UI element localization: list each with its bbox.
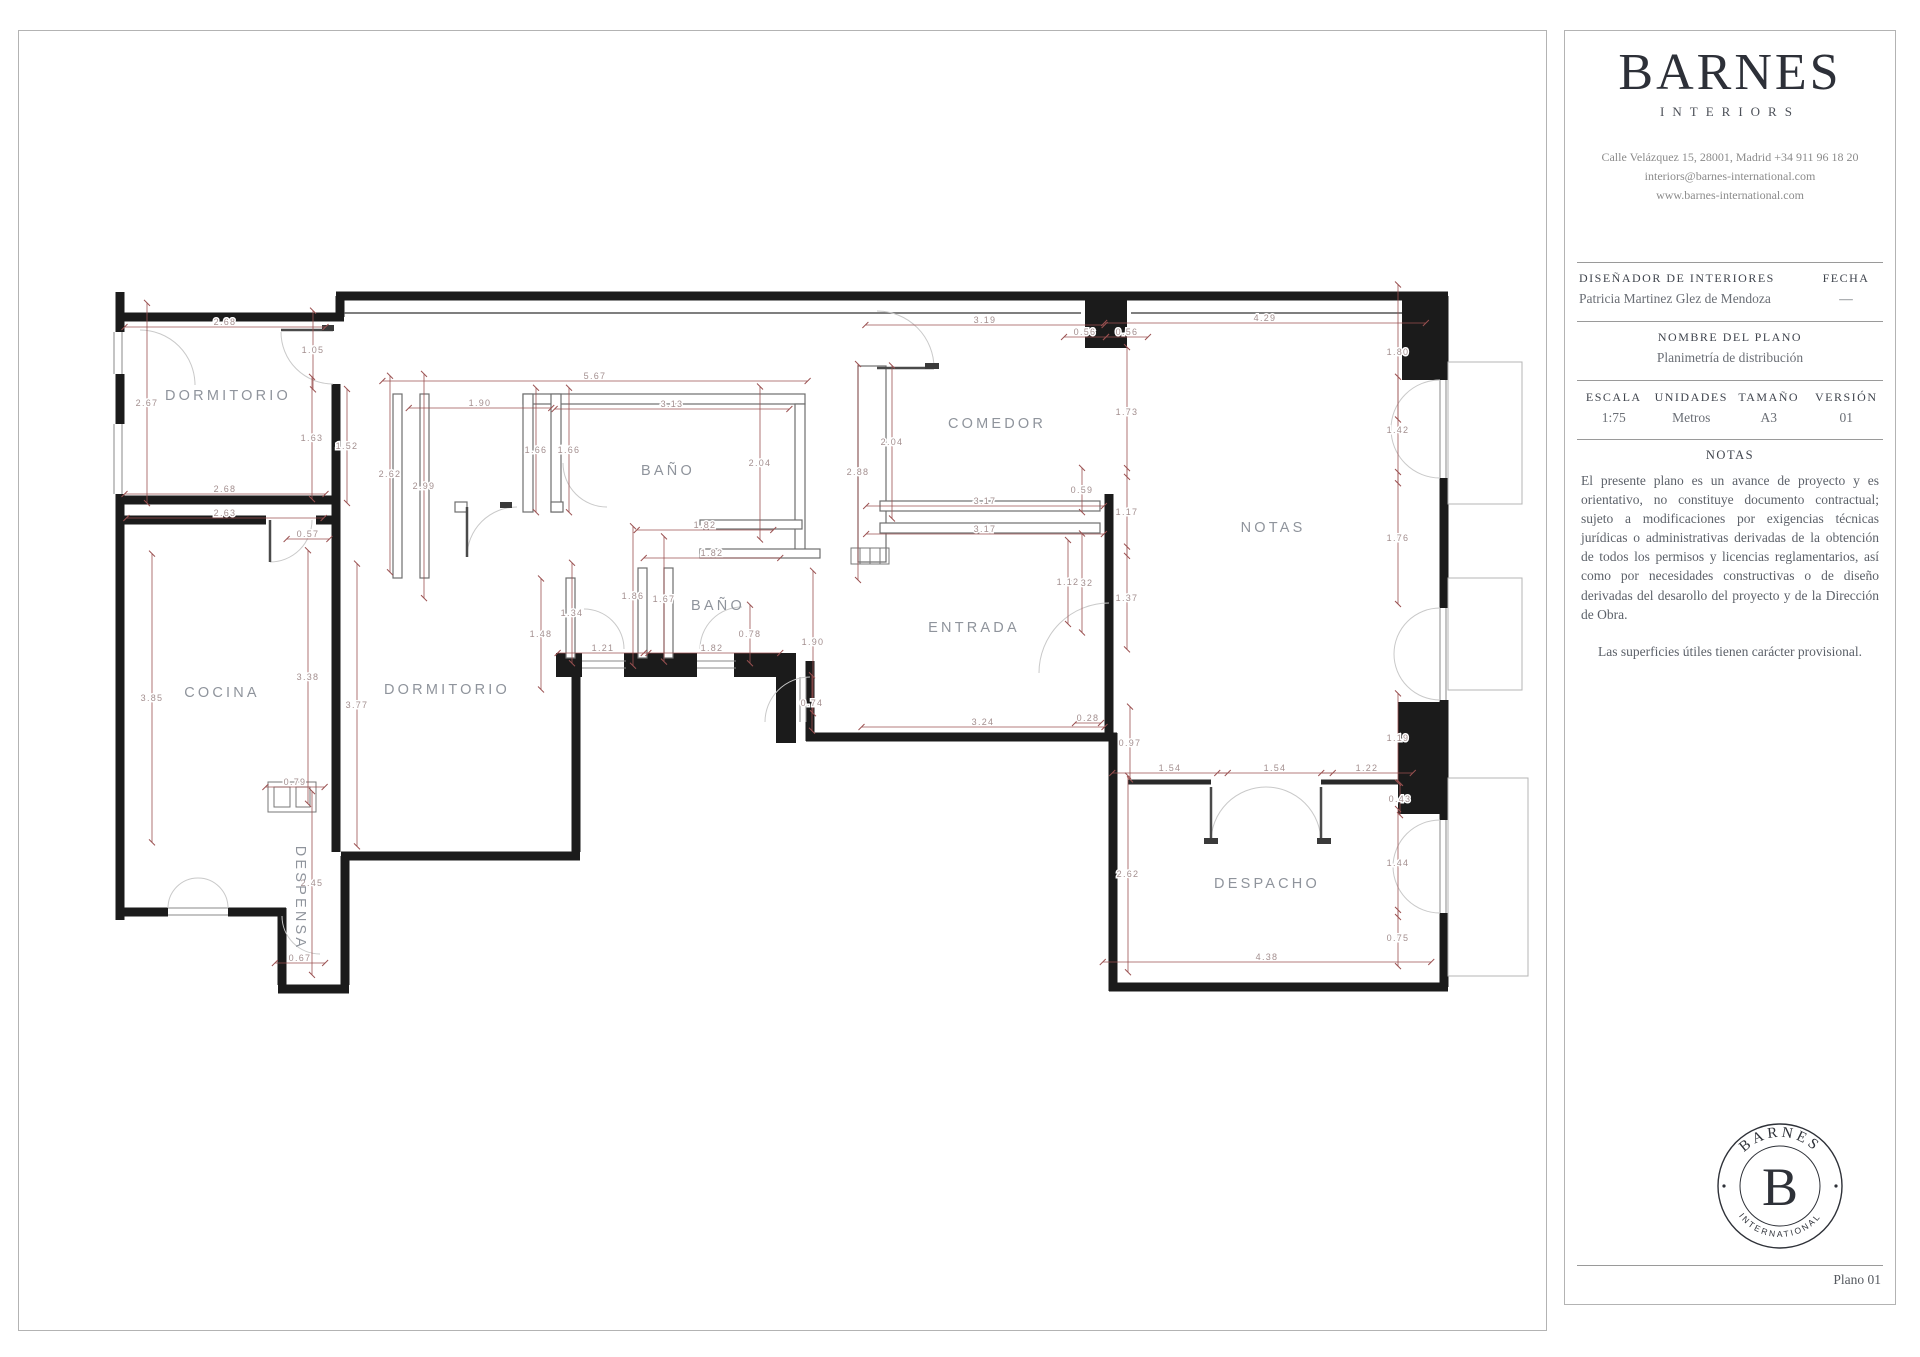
sheet: 2.685.671.903.132.682.630.571.821.821.21… <box>0 0 1920 1357</box>
dimension-label: 1.82 <box>694 520 717 530</box>
dimension-label: 0.78 <box>739 629 762 639</box>
dimension-label: 1.67 <box>653 594 676 604</box>
dimension-label: 2.88 <box>847 467 870 477</box>
dimension-label: 3.17 <box>974 524 997 534</box>
dimension-label: 0.43 <box>1389 794 1412 804</box>
dimension: 1.44 <box>1387 806 1410 920</box>
dimension: 1.54 <box>1214 763 1336 776</box>
dimension: 1.12 <box>1057 537 1080 627</box>
designer-value: Patricia Martinez Glez de Mendoza <box>1579 291 1775 307</box>
dimension: 4.29 <box>1101 313 1429 326</box>
brand-sub-label: INTERIORS <box>1565 104 1895 120</box>
dimension-label: 1.22 <box>1356 763 1379 773</box>
dimension-label: 0.59 <box>1071 485 1094 495</box>
dimension-label: 2.62 <box>1117 869 1140 879</box>
dimension: 2.99 <box>413 371 436 601</box>
dimension-label: 1.54 <box>1159 763 1182 773</box>
dimension: 3.19 <box>862 315 1107 328</box>
dimension-label: 2.62 <box>379 469 402 479</box>
spec-version: VERSIÓN 01 <box>1808 390 1886 426</box>
dimension-label: 1.82 <box>701 548 724 558</box>
title-block: BARNES INTERIORS Calle Velázquez 15, 280… <box>1564 30 1896 1305</box>
dimension: 1.73 <box>1116 344 1139 480</box>
room-label: DORMITORIO <box>384 682 510 698</box>
dimension-label: 1.82 <box>701 643 724 653</box>
dimension-label: 3.24 <box>972 717 995 727</box>
fecha-label: FECHA <box>1811 271 1881 286</box>
dimension: 4.38 <box>1100 952 1435 965</box>
notes-heading: NOTAS <box>1565 440 1895 463</box>
dimension: 5.67 <box>379 371 810 384</box>
barnes-international-stamp: BARNES INTERNATIONAL B <box>1715 1121 1845 1251</box>
dimension: 0.75 <box>1387 907 1410 969</box>
dimension-label: 0.74 <box>801 698 824 708</box>
dimension: 2.67 <box>136 300 159 506</box>
sheet-number: Plano 01 <box>1833 1272 1881 1288</box>
dimension-label: 1.42 <box>1387 425 1410 435</box>
dimension-label: 1.54 <box>1264 763 1287 773</box>
dimension: 0.57 <box>284 529 333 542</box>
dimension: 2.68 <box>122 484 329 497</box>
dimension: 0.28 <box>1072 713 1104 726</box>
room-label: NOTAS <box>1241 520 1306 536</box>
spec-escala: ESCALA 1:75 <box>1575 390 1653 426</box>
divider <box>1577 1265 1883 1266</box>
dimension: 1.34 <box>561 560 584 667</box>
dimension-label: 1.34 <box>561 608 584 618</box>
dimension-label: 3.13 <box>661 399 684 409</box>
dimension-label: 1.86 <box>622 591 645 601</box>
spec-tamano: TAMAÑO A3 <box>1730 390 1808 426</box>
dimension-label: 1.21 <box>592 643 615 653</box>
dimension-label: 1.66 <box>525 445 548 455</box>
dimension: 1.90 <box>802 568 825 717</box>
room-label: ENTRADA <box>928 620 1020 636</box>
dimension-label: 3.19 <box>974 315 997 325</box>
dimension: 0.74 <box>801 672 824 734</box>
dimension-label: 1.44 <box>1387 858 1410 868</box>
stamp-top-text: BARNES <box>1736 1125 1823 1156</box>
dimension: 3.24 <box>859 717 1108 730</box>
dimension: 0.79 <box>262 777 327 790</box>
room-label: BAÑO <box>691 597 745 614</box>
dimension-label: 3.77 <box>346 700 369 710</box>
room-label: DESPACHO <box>1214 876 1320 892</box>
specs-row: ESCALA 1:75 UNIDADES Metros TAMAÑO A3 VE… <box>1565 381 1895 439</box>
dimension-label: 3.38 <box>297 672 320 682</box>
dimension-label: 0.79 <box>284 777 307 787</box>
brand-logo: BARNES <box>1565 43 1895 102</box>
dimension-label: 2.63 <box>214 508 237 518</box>
dimension-label: 2.04 <box>881 437 904 447</box>
dimension-label: 2.68 <box>214 484 237 494</box>
dimension-label: 0.56 <box>1116 327 1139 337</box>
dimension-label: 1.48 <box>530 629 553 639</box>
dimension: 1.54 <box>1109 763 1231 776</box>
dimension-label: 2.67 <box>136 398 159 408</box>
dimension-label: 0.56 <box>1074 327 1097 337</box>
dimension: 1.17 <box>1116 465 1139 559</box>
dimension-label: 1.52 <box>336 441 359 451</box>
designer-row: DISEÑADOR DE INTERIORES Patricia Martine… <box>1565 263 1895 321</box>
balconies <box>1448 362 1528 976</box>
dimension-label: 1.19 <box>1387 733 1410 743</box>
stamp-monogram: B <box>1762 1157 1798 1217</box>
contact-email[interactable]: interiors@barnes-international.com <box>1565 167 1895 186</box>
dimension: 1.76 <box>1387 469 1410 607</box>
dimension-label: 0.67 <box>289 953 312 963</box>
dimension-layer: 2.685.671.903.132.682.630.571.821.821.21… <box>122 282 1435 978</box>
windows <box>114 332 1446 915</box>
dimension-label: 1.90 <box>802 637 825 647</box>
dimension: 1.48 <box>530 576 553 693</box>
designer-label: DISEÑADOR DE INTERIORES <box>1579 271 1775 286</box>
dimension-label: 1.66 <box>558 445 581 455</box>
spec-unidades: UNIDADES Metros <box>1653 390 1731 426</box>
dimension-label: 2.04 <box>749 458 772 468</box>
plan-name-row: NOMBRE DEL PLANO Planimetría de distribu… <box>1565 322 1895 380</box>
dimension: 2.04 <box>749 384 772 543</box>
dimension-label: 1.37 <box>1116 593 1139 603</box>
dimension-label: 0.97 <box>1119 738 1142 748</box>
dimension-label: 4.29 <box>1254 313 1277 323</box>
room-label: COCINA <box>184 685 260 701</box>
room-label: BAÑO <box>641 462 695 479</box>
room-label: COMEDOR <box>948 416 1046 432</box>
dimension-label: 1.90 <box>469 398 492 408</box>
dimension-label: 1.76 <box>1387 533 1410 543</box>
dimension-label: 1.73 <box>1116 407 1139 417</box>
dimension-label: 1.05 <box>302 345 325 355</box>
room-label: DESPENSA <box>292 846 308 951</box>
dimension: 3.77 <box>346 561 369 850</box>
plan-name-label: NOMBRE DEL PLANO <box>1579 330 1881 345</box>
room-label: DORMITORIO <box>165 388 291 404</box>
dimension-label: 2.68 <box>214 317 237 327</box>
dimension-label: 0.75 <box>1387 933 1410 943</box>
dimension-label: 3.85 <box>141 693 164 703</box>
plan-name-value: Planimetría de distribución <box>1579 350 1881 366</box>
dimension-label: 0.28 <box>1077 713 1100 723</box>
dimension: 1.63 <box>301 374 324 502</box>
svg-text:BARNES: BARNES <box>1736 1125 1823 1156</box>
contact-block: Calle Velázquez 15, 28001, Madrid +34 91… <box>1565 148 1895 206</box>
dimension-label: 2.99 <box>413 481 436 491</box>
partitions <box>393 366 1100 658</box>
fecha-value: — <box>1811 291 1881 307</box>
dimension-label: 3.17 <box>974 496 997 506</box>
notes-footnote: Las superficies útiles tienen carácter p… <box>1581 644 1879 660</box>
dimension: 1.37 <box>1116 544 1139 653</box>
dimension: 1.42 <box>1387 374 1410 487</box>
dimension: 2.62 <box>1117 773 1140 976</box>
dimension-label: 1.80 <box>1387 347 1410 357</box>
notes-paragraph: El presente plano es un avance de proyec… <box>1581 471 1879 624</box>
dimension-label: 4.38 <box>1256 952 1279 962</box>
dimension: 0.97 <box>1119 704 1142 783</box>
dimension: 3.85 <box>141 551 164 846</box>
contact-website[interactable]: www.barnes-international.com <box>1565 186 1895 205</box>
dimension-label: 1.17 <box>1116 507 1139 517</box>
dimension: 3.38 <box>297 547 320 807</box>
dimension-label: 5.67 <box>584 371 607 381</box>
dimension-label: 1.63 <box>301 433 324 443</box>
dimension-label: 0.57 <box>297 529 320 539</box>
dimension-label: 1.12 <box>1057 577 1080 587</box>
contact-address: Calle Velázquez 15, 28001, Madrid +34 91… <box>1565 148 1895 167</box>
